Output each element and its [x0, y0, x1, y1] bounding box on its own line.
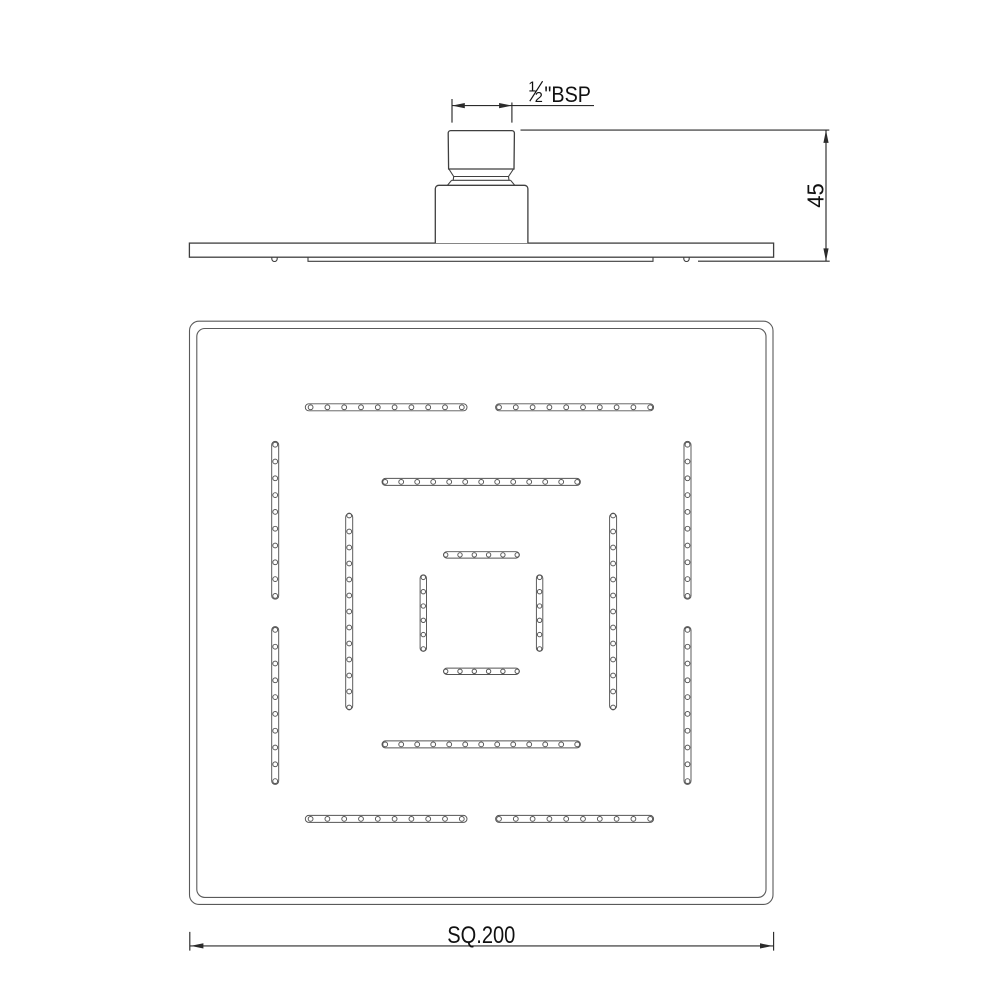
svg-text:45: 45 [803, 183, 829, 208]
svg-text:SQ.200: SQ.200 [447, 922, 515, 949]
svg-text:2: 2 [535, 90, 543, 106]
svg-text:"BSP: "BSP [544, 82, 591, 107]
